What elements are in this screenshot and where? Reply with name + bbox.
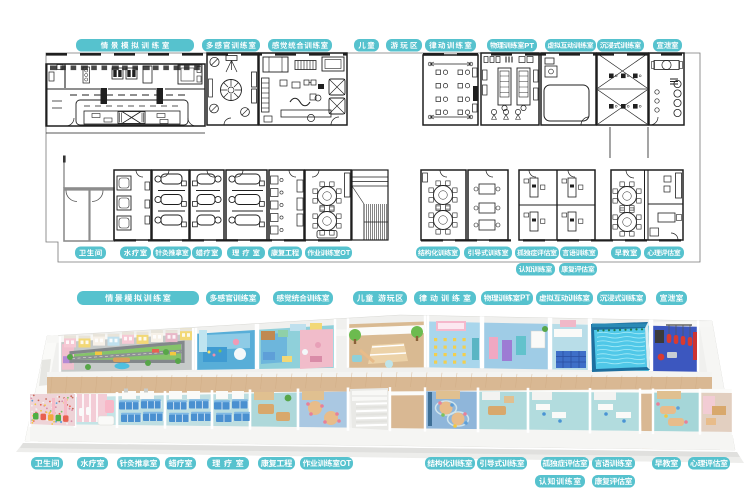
svg-text:PT: PT xyxy=(520,294,530,303)
svg-text:OT: OT xyxy=(340,248,351,257)
svg-text:OT: OT xyxy=(340,459,351,468)
svg-text:PT: PT xyxy=(524,41,534,50)
